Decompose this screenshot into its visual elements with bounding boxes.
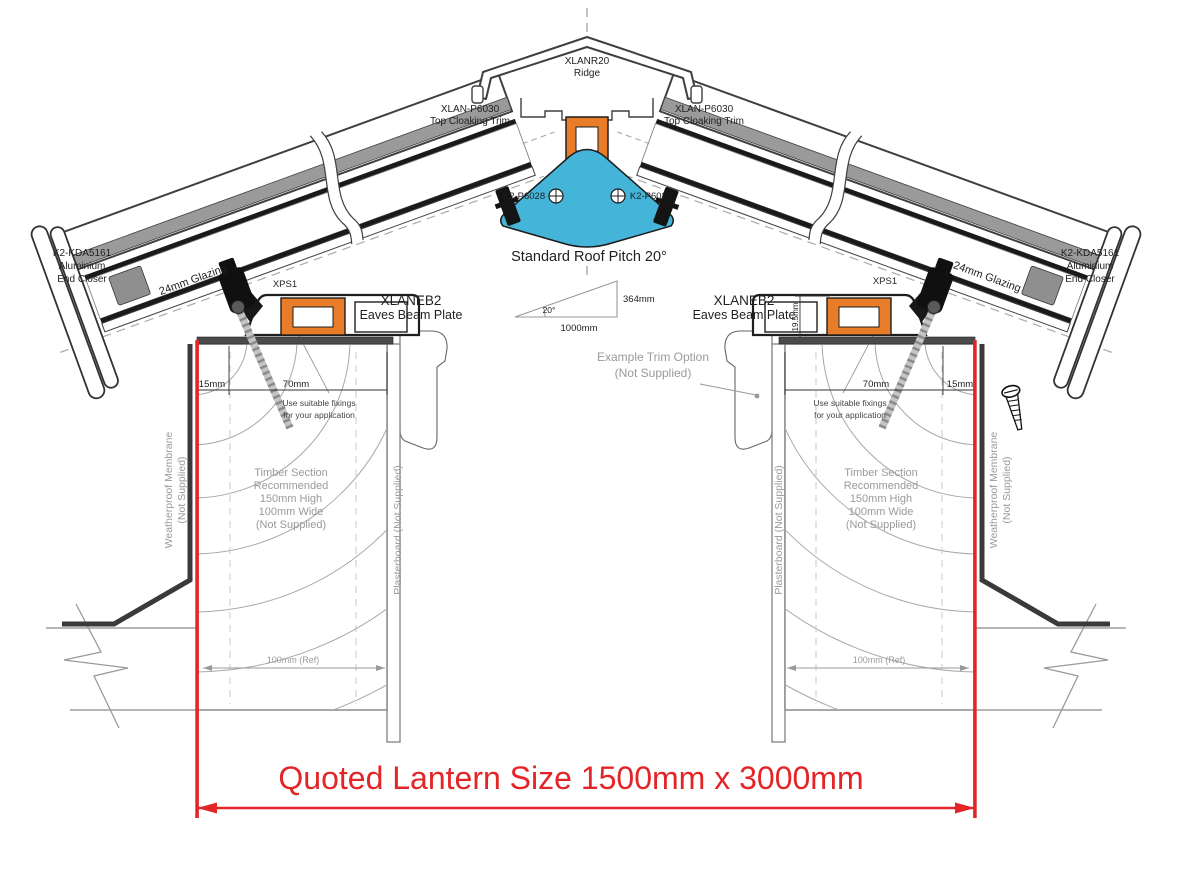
cloaking-code-right: XLAN-P6030: [675, 104, 734, 115]
ref-dim-label-left: 100mm (Ref): [267, 655, 320, 665]
plasterboard-note-right: Plasterboard (Not Supplied): [773, 465, 785, 595]
timber-note-left-4: 100mm Wide: [259, 506, 324, 518]
ref-dim-label-right: 100mm (Ref): [853, 655, 906, 665]
cloaking-code-left: XLAN-P6030: [441, 104, 500, 115]
screw-icon: [1001, 384, 1029, 432]
ridge-label: Ridge: [574, 68, 601, 79]
ridge-cap-hook: [691, 86, 702, 103]
ridge-code: XLANR20: [565, 56, 610, 67]
seat-dim-right: 70mm: [863, 379, 889, 390]
pitch-angle: 20°: [543, 305, 556, 315]
pitch-triangle: [515, 281, 617, 317]
end-closer-code-right: K2-KDA5161: [1061, 248, 1120, 259]
drawing-canvas: XLANR20 Ridge XLAN-P6030 Top Cloaking Tr…: [0, 0, 1184, 872]
membrane-note-right-2: (Not Supplied): [1001, 456, 1013, 523]
upstand-dim-label: 19.5mm: [791, 302, 800, 331]
edge-dim-right: 15mm: [947, 379, 973, 390]
pitch-triangle-outline: [515, 281, 617, 317]
glazing-bar-code-right: K2-P6028: [630, 191, 672, 202]
edge-dim-left: 15mm: [199, 379, 225, 390]
ridge-core-cavity: [576, 127, 598, 151]
timber-note-right-5: (Not Supplied): [846, 519, 916, 531]
trim-option-note-1: Example Trim Option: [597, 350, 709, 364]
quote-dim-arrow-right: [955, 803, 975, 814]
eaves-beam-code-left: XLANEB2: [381, 293, 442, 308]
fixings-note-right-1: Use suitable fixings: [813, 398, 886, 408]
fixings-note-right-2: for your application: [814, 410, 886, 420]
timber-note-right-1: Timber Section: [844, 467, 918, 479]
timber-note-left-1: Timber Section: [254, 467, 328, 479]
end-closer-code-left: K2-KDA5161: [53, 248, 112, 259]
glazing-bar-code-left: K2-P6028: [503, 191, 545, 202]
plasterboard-note-left: Plasterboard (Not Supplied): [392, 465, 404, 595]
timber-note-right-3: 150mm High: [850, 493, 912, 505]
lantern-section-drawing: XLANR20 Ridge XLAN-P6030 Top Cloaking Tr…: [0, 0, 1184, 872]
xps-label-right: XPS1: [873, 276, 897, 287]
membrane-note-right-1: Weatherproof Membrane: [988, 432, 1000, 549]
eaves-beam-label-right: Eaves Beam Plate: [693, 308, 796, 322]
eaves-beam-label-left: Eaves Beam Plate: [360, 308, 463, 322]
seat-dim-left: 70mm: [283, 379, 309, 390]
end-closer-material-left: Aluminium: [59, 261, 106, 272]
pitch-title: Standard Roof Pitch 20°: [511, 249, 667, 265]
timber-note-left-2: Recommended: [254, 480, 329, 492]
membrane-note-left-2: (Not Supplied): [176, 456, 188, 523]
timber-note-right-2: Recommended: [844, 480, 919, 492]
pitch-rise: 364mm: [623, 294, 655, 305]
cloaking-label-right: Top Cloaking Trim: [664, 116, 744, 127]
end-closer-label-left: End Closer: [57, 274, 107, 285]
eaves-beam-code-right: XLANEB2: [714, 293, 775, 308]
timber-note-right-4: 100mm Wide: [849, 506, 914, 518]
membrane-note-left-1: Weatherproof Membrane: [163, 432, 175, 549]
left-half-structure: [0, 0, 654, 818]
xps-label-left: XPS1: [273, 279, 297, 290]
end-closer-label-right: End Closer: [1065, 274, 1115, 285]
timber-note-left-5: (Not Supplied): [256, 519, 326, 531]
trim-option-note-2: (Not Supplied): [615, 366, 692, 380]
ridge-cap-hook: [472, 86, 483, 103]
trim-option-leader-dot: [755, 394, 760, 399]
right-half-structure: [518, 0, 1184, 818]
fixings-note-left-2: for your application: [283, 410, 355, 420]
end-closer-material-right: Aluminium: [1067, 261, 1114, 272]
quote-dim-arrow-left: [197, 803, 217, 814]
cloaking-label-left: Top Cloaking Trim: [430, 116, 510, 127]
fixings-note-left-1: Use suitable fixings: [282, 398, 355, 408]
pitch-run: 1000mm: [561, 323, 598, 334]
timber-note-left-3: 150mm High: [260, 493, 322, 505]
quoted-size-label: Quoted Lantern Size 1500mm x 3000mm: [278, 760, 863, 796]
